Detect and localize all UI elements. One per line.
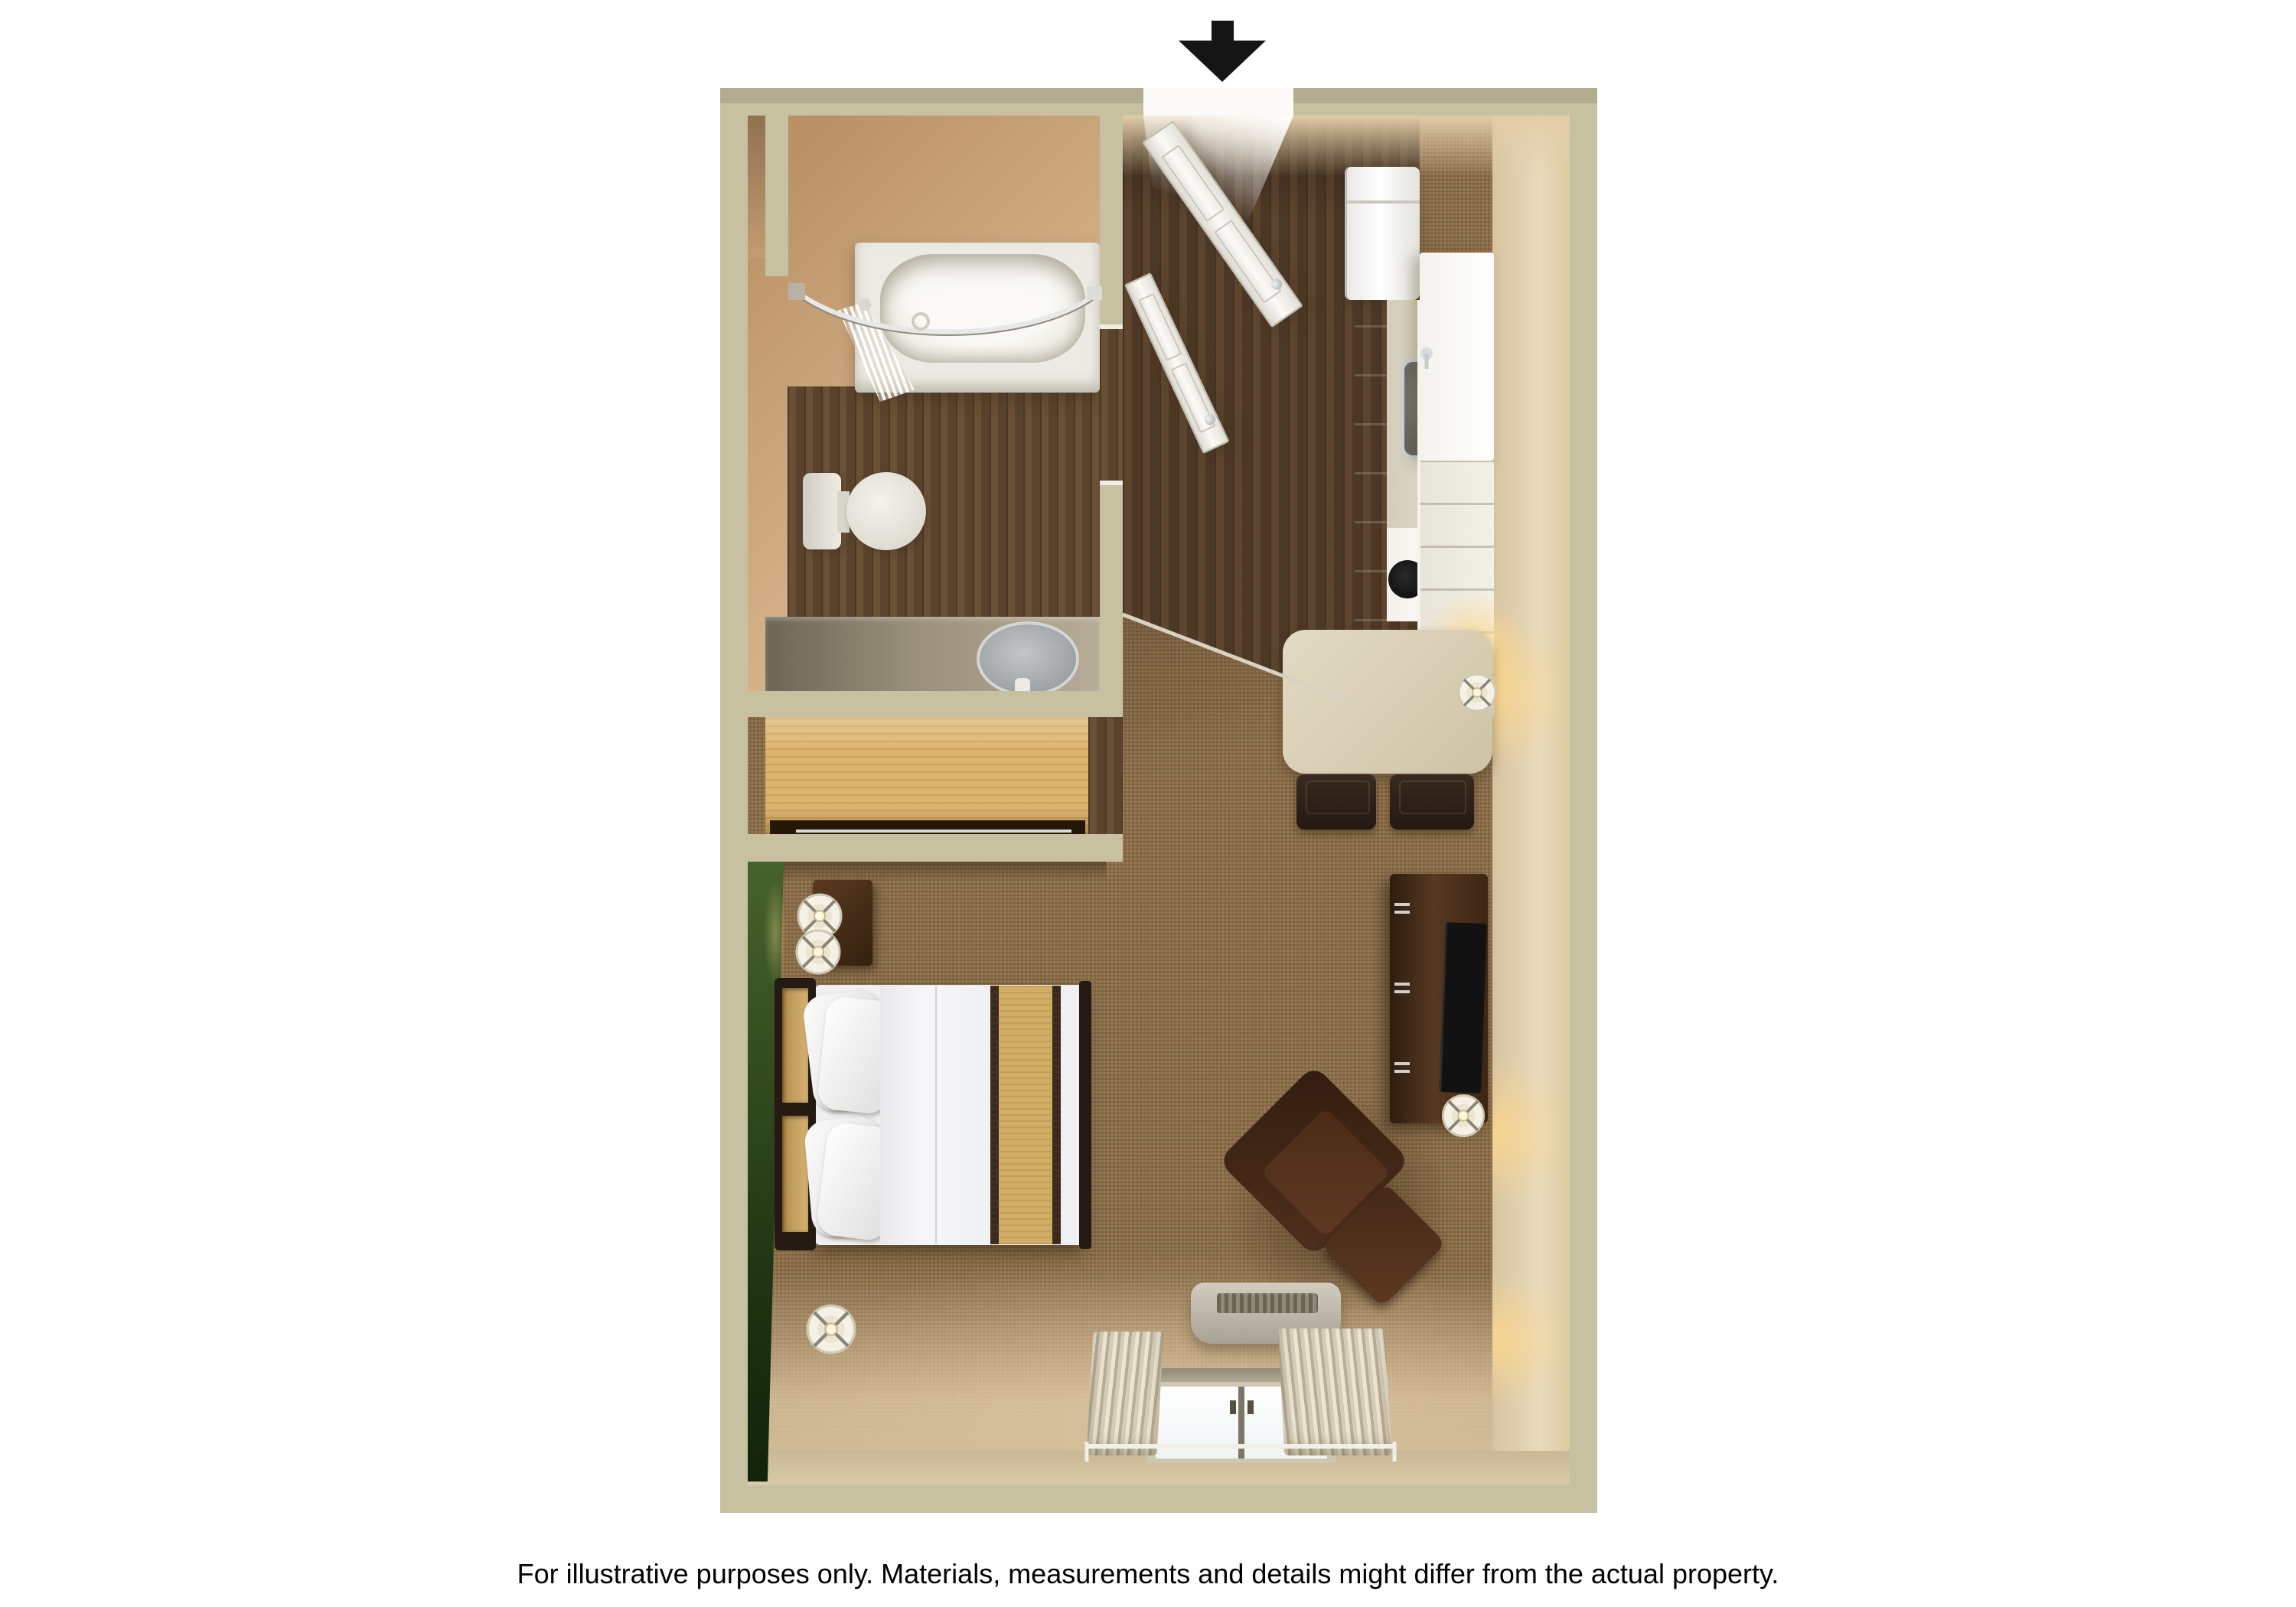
nightstand-lamp-2 <box>797 931 840 973</box>
shower-rod-anchor-right <box>1087 286 1102 300</box>
tub-drain <box>913 314 928 329</box>
window-handle-left <box>1230 1400 1236 1414</box>
dresser-handles <box>1394 905 1410 1071</box>
window-handle-right <box>1247 1400 1254 1414</box>
floor-transition-strip <box>1123 614 1345 699</box>
dresser-lamp <box>1443 1095 1483 1136</box>
tub-faucet <box>859 298 871 311</box>
floor-plan <box>0 0 2296 1607</box>
floor-plan-page: For illustrative purposes only. Material… <box>0 0 2296 1607</box>
disclaimer-text: For illustrative purposes only. Material… <box>0 1558 2296 1590</box>
shower-rod <box>799 294 1093 332</box>
table-lamp <box>1459 674 1495 711</box>
shower-rod-anchor-left <box>788 283 805 300</box>
detail-overlay <box>0 0 2296 1607</box>
floor-lamp <box>807 1305 855 1353</box>
